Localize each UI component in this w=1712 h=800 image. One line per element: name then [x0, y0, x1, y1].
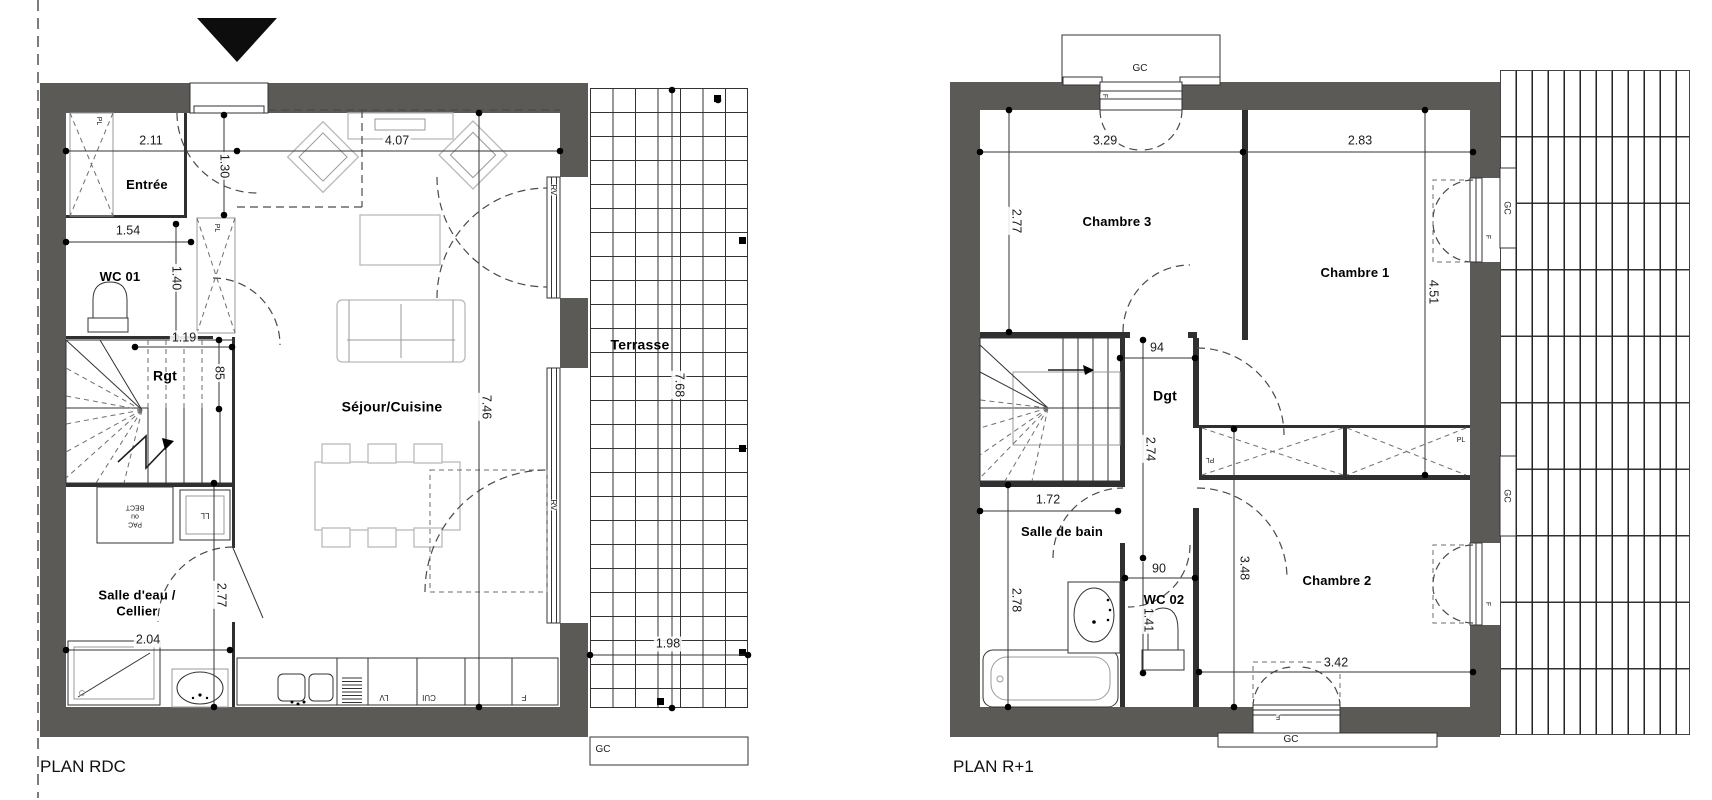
note-label-rv: RV	[548, 185, 558, 196]
room-label-s-jour-cuisine: Séjour/Cuisine	[342, 399, 443, 416]
dim-label-2-04: 2.04	[134, 633, 162, 648]
note-label-gc: GC	[1133, 63, 1148, 75]
note-label-f: F	[1100, 94, 1108, 98]
dim-label-90: 90	[1150, 562, 1168, 577]
room-label-dgt: Dgt	[1153, 388, 1177, 405]
room-label-wc-01: WC 01	[100, 269, 141, 285]
plan-r1-title: PLAN R+1	[953, 757, 1034, 777]
note-label-cui: CUI	[422, 692, 436, 702]
note-label-f: F	[1483, 235, 1491, 239]
note-label-gc: GC	[1284, 734, 1299, 746]
room-label-chambre-1: Chambre 1	[1321, 265, 1390, 281]
dim-label-2-11: 2.11	[137, 134, 164, 149]
note-label-pac-ou-bect: PAC ou BECT	[126, 502, 145, 527]
dim-label-1-40: 1.40	[169, 264, 184, 292]
dim-label-2-77: 2.77	[214, 581, 229, 609]
dim-label-94: 94	[1148, 341, 1166, 356]
dim-label-2-83: 2.83	[1346, 134, 1374, 149]
room-label-rgt: Rgt	[153, 368, 177, 385]
dim-label-1-72: 1.72	[1034, 493, 1062, 508]
note-label-f: F	[1483, 602, 1491, 606]
room-label-entr-e: Entrée	[126, 177, 168, 193]
note-label-ll: LL	[201, 510, 210, 520]
note-label-pl: PL	[1457, 437, 1466, 445]
room-label-chambre-3: Chambre 3	[1083, 214, 1152, 230]
note-label-pl: PL	[94, 117, 102, 126]
dim-label-2-74: 2.74	[1143, 435, 1158, 463]
room-label-terrasse: Terrasse	[611, 337, 670, 354]
dim-label-7-68: 7.68	[672, 371, 687, 399]
note-label-f: F	[522, 692, 527, 702]
dim-label-3-48: 3.48	[1237, 554, 1252, 582]
label-overlay: PLAN RDC PLAN R+1 EntréeWC 01RgtSéjour/C…	[0, 0, 1712, 800]
room-label-wc-02: WC 02	[1144, 592, 1185, 608]
note-label-gc: GC	[1502, 489, 1513, 503]
note-label-pl: PL	[212, 224, 220, 233]
note-label-gc: GC	[1502, 201, 1513, 215]
note-label-gc: GC	[596, 744, 611, 756]
dim-label-85: 85	[212, 364, 227, 382]
dim-label-4-07: 4.07	[383, 134, 411, 149]
room-label-chambre-2: Chambre 2	[1303, 573, 1372, 589]
room-label-salle-d-eau-cellier: Salle d'eau / Cellier	[98, 587, 175, 618]
plan-rdc-title: PLAN RDC	[40, 757, 126, 777]
note-label-f: F	[1276, 712, 1280, 720]
dim-label-3-29: 3.29	[1091, 134, 1119, 149]
room-label-salle-de-bain: Salle de bain	[1021, 524, 1103, 540]
dim-label-3-42: 3.42	[1322, 656, 1350, 671]
dim-label-7-46: 7.46	[479, 393, 494, 421]
note-label-lv: LV	[379, 692, 388, 702]
note-label-rv: RV	[548, 500, 558, 511]
dim-label-1-98: 1.98	[654, 637, 682, 652]
dim-label-2-78: 2.78	[1009, 586, 1024, 614]
dim-label-1-41: 1.41	[1141, 606, 1156, 634]
dim-label-2-77: 2.77	[1009, 207, 1024, 235]
note-label-pl: PL	[1206, 455, 1215, 463]
dim-label-1-30: 1.30	[217, 152, 232, 180]
floorplan-canvas: PLAN RDC PLAN R+1 EntréeWC 01RgtSéjour/C…	[0, 0, 1712, 800]
dim-label-1-54: 1.54	[114, 224, 142, 239]
dim-label-1-19: 1.19	[170, 331, 198, 346]
dim-label-4-51: 4.51	[1426, 278, 1441, 306]
